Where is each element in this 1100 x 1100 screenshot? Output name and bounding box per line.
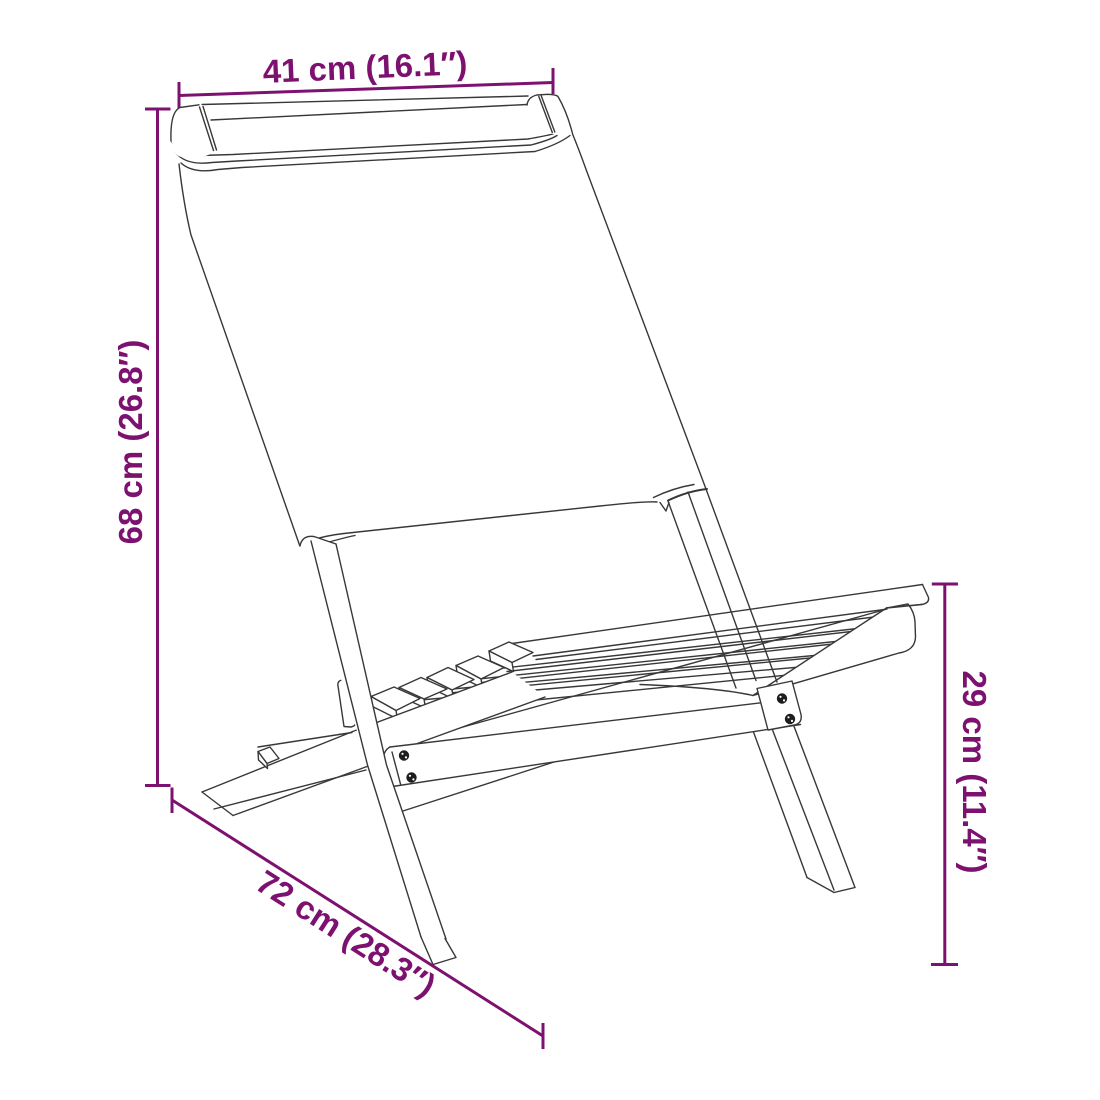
svg-text:29 cm (11.4″): 29 cm (11.4″) [956,671,993,874]
svg-text:68 cm (26.8″): 68 cm (26.8″) [112,340,149,545]
svg-text:41 cm (16.1″): 41 cm (16.1″) [262,44,468,90]
